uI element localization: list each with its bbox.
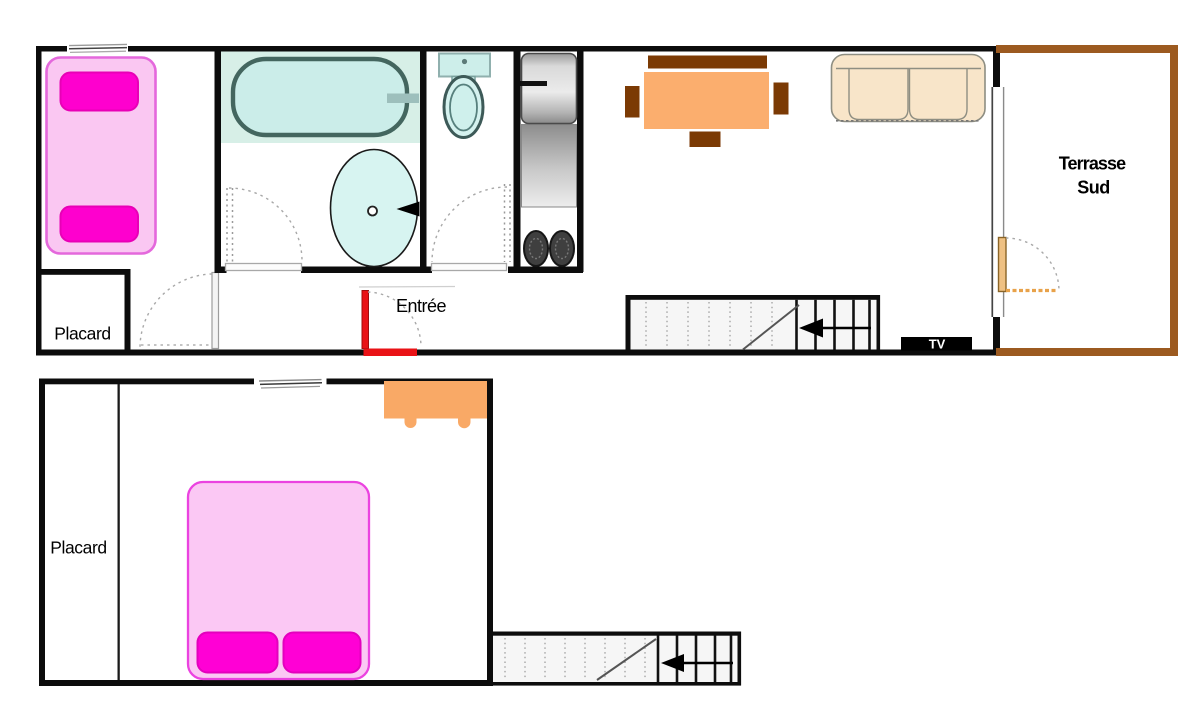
svg-text:Placard: Placard <box>54 323 111 343</box>
svg-text:Terrasse: Terrasse <box>1059 154 1126 174</box>
svg-text:TV: TV <box>929 337 946 352</box>
svg-text:Entrée: Entrée <box>396 296 447 316</box>
svg-text:Placard: Placard <box>50 538 107 558</box>
svg-text:Sud: Sud <box>1077 177 1110 197</box>
